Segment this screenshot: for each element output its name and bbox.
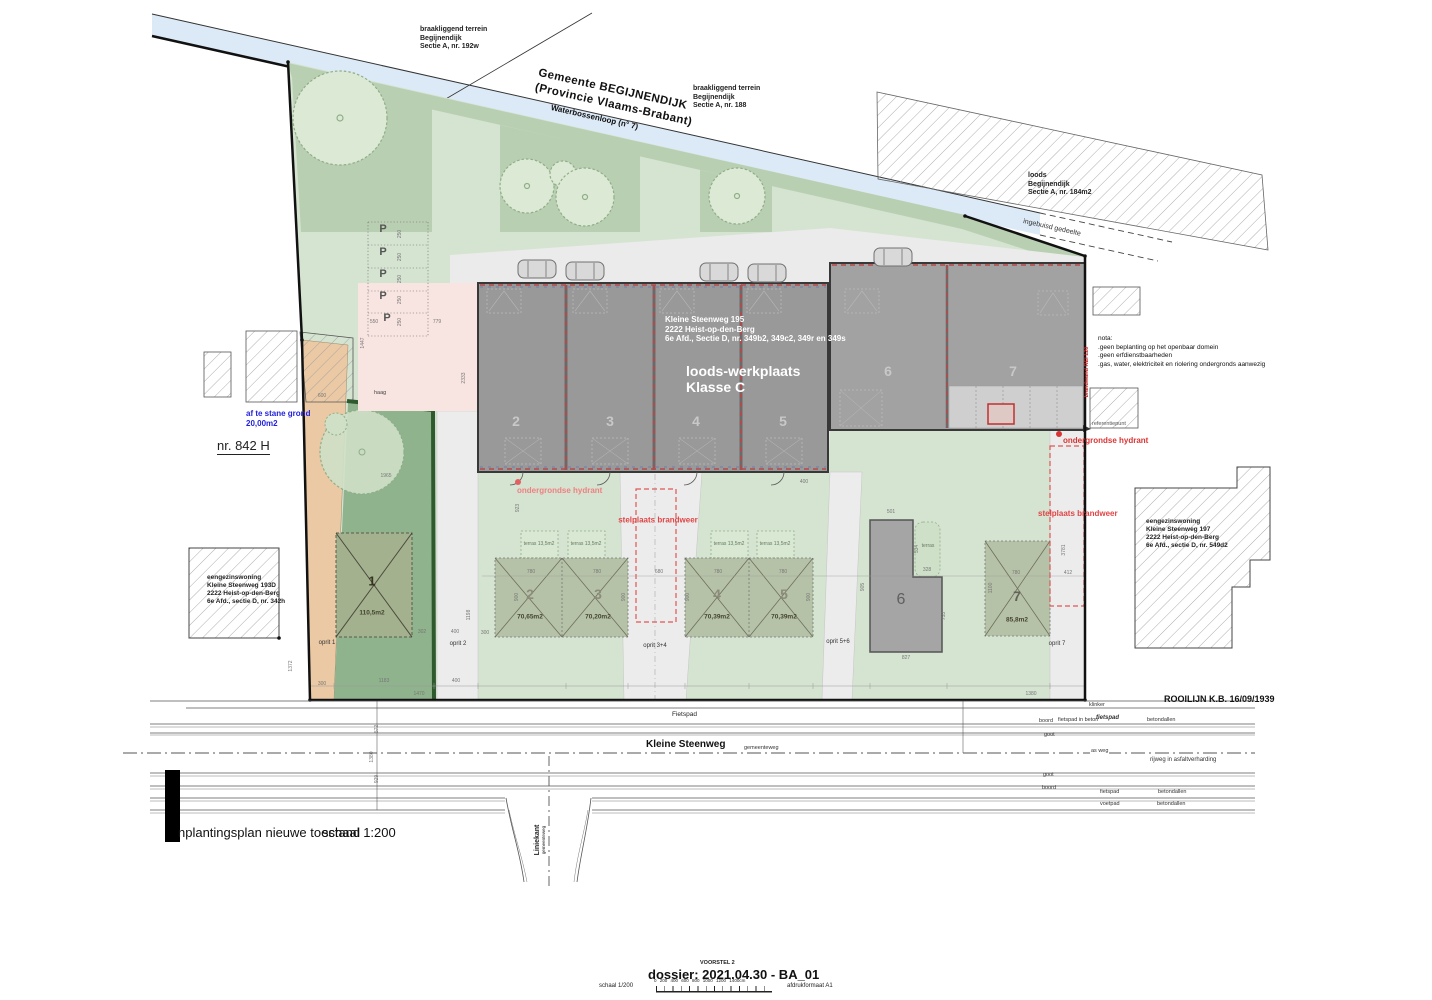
dimension-label: 1372 [288,660,294,671]
dimension-label: 3781 [1061,544,1067,555]
dimension-label: 550 [370,319,378,325]
dimension-label: 905 [860,583,866,591]
dimension-label: 250 [397,230,403,238]
dimension-label: 780 [1012,570,1020,576]
building-unit-number: 7 [1009,363,1017,379]
building-unit-number: 4 [692,413,700,429]
parking-space-mark: P [379,268,386,280]
dimension-label: 1447 [360,337,366,348]
terrace-label: terras 13,5m2 [571,541,602,547]
dimension-label: 328 [923,567,931,573]
lot-area: 70,39m2 [704,614,730,621]
lot-area: 70,65m2 [517,614,543,621]
driveway-label: oprit 2 [450,641,467,647]
driveway-label: oprit 1 [319,640,336,646]
lot-number: 6 [897,591,906,609]
dimension-label: 300 [318,681,326,687]
dimension-label: 2333 [461,372,467,383]
dimension-label: 929 [374,775,380,783]
parking-space-mark: P [379,246,386,258]
lot-number: 2 [526,586,534,602]
parking-space-mark: P [379,290,386,302]
dimension-label: 900 [685,593,691,601]
dimension-label: 780 [593,569,601,575]
lot-area: 110,5m2 [359,610,384,617]
lot-number: 3 [594,586,602,602]
dimension-label: 1183 [379,678,390,684]
dimension-label: 300 [481,630,489,636]
dimension-label: 753 [941,612,947,620]
dimension-label: 250 [397,253,403,261]
lot-number: 5 [780,586,788,602]
lot-number: 4 [713,586,721,602]
dimension-label: 680 [655,569,663,575]
dimension-label: 1100 [988,583,994,594]
parking-space-mark: P [383,312,390,324]
lot-area: 70,39m2 [771,614,797,621]
dimension-label: 600 [318,393,326,399]
dimension-label: 900 [621,593,627,601]
dimension-label: 412 [1064,570,1072,576]
dimension-label: 534 [914,545,920,553]
building-unit-number: 5 [779,413,787,429]
dimension-label: 780 [527,569,535,575]
dimension-label: 1198 [466,610,472,621]
site-plan-canvas: braakliggend terrein Begijnendijk Sectie… [0,0,1432,1000]
dimension-label: 1470 [413,691,424,697]
dimension-label: 780 [714,569,722,575]
dimension-label: 302 [418,629,426,635]
dimension-label: 572 [374,725,380,733]
dimension-label: 900 [806,593,812,601]
driveway-label: oprit 5+6 [826,639,850,645]
driveway-label: oprit 3+4 [643,643,667,649]
building-unit-number: 6 [884,363,892,379]
dimension-label: 1380 [369,751,375,762]
dimension-label: 923 [515,504,521,512]
dimension-label: 250 [397,318,403,326]
terrace-label: terras [922,543,935,549]
lot-number: 1 [368,574,375,589]
dimension-label: 250 [397,275,403,283]
lot-number: 7 [1013,588,1021,604]
parking-space-mark: P [379,223,386,235]
terrace-label: terras 13,5m2 [524,541,555,547]
dimension-label: 400 [452,678,460,684]
building-unit-number: 2 [512,413,520,429]
dimension-label: 1965 [380,473,391,479]
dimension-label: 779 [433,319,441,325]
terrace-label: terras 13,5m2 [714,541,745,547]
lot-area: 70,20m2 [585,614,611,621]
dimension-label: 1380 [1025,691,1036,697]
building-unit-number: 3 [606,413,614,429]
terrace-label: terras 13,5m2 [760,541,791,547]
driveway-label: oprit 7 [1049,641,1066,647]
dimension-label: 400 [800,479,808,485]
dimension-label: 400 [451,629,459,635]
lot-area: 85,8m2 [1006,617,1028,624]
annotation-layer: 6001965550779250250250250250144723333001… [0,0,1432,1000]
dimension-label: 501 [887,509,895,515]
dimension-label: 900 [514,593,520,601]
dimension-label: 780 [779,569,787,575]
dimension-label: 827 [902,655,910,661]
dimension-label: 250 [397,296,403,304]
